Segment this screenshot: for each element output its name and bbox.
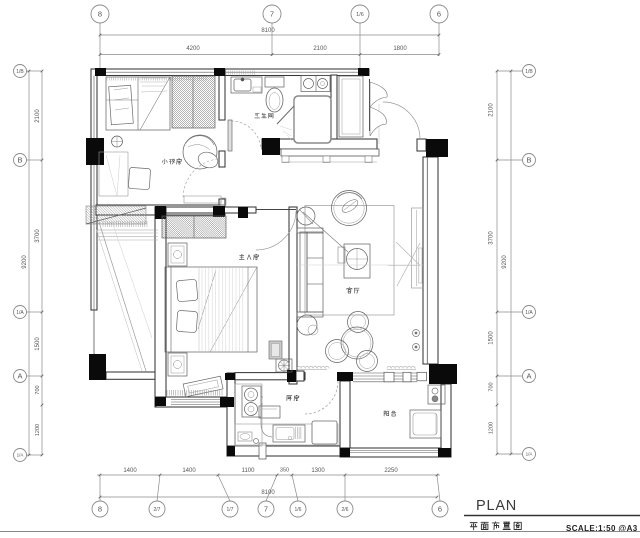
svg-text:8100: 8100 bbox=[261, 490, 275, 496]
svg-text:2100: 2100 bbox=[489, 103, 495, 117]
svg-text:1400: 1400 bbox=[123, 468, 137, 474]
svg-text:7: 7 bbox=[264, 505, 268, 514]
svg-text:1/7: 1/7 bbox=[227, 507, 234, 513]
svg-text:1/A: 1/A bbox=[17, 453, 24, 458]
svg-text:1/A: 1/A bbox=[525, 310, 533, 316]
svg-text:2/6: 2/6 bbox=[342, 507, 349, 513]
svg-text:9200: 9200 bbox=[502, 255, 508, 269]
svg-text:1/6: 1/6 bbox=[356, 12, 364, 18]
svg-text:1/A: 1/A bbox=[526, 452, 533, 457]
svg-text:8: 8 bbox=[98, 10, 102, 19]
svg-text:3700: 3700 bbox=[489, 231, 495, 245]
svg-text:2100: 2100 bbox=[35, 109, 41, 123]
svg-text:8: 8 bbox=[98, 505, 102, 514]
svg-text:A: A bbox=[526, 372, 531, 381]
svg-text:1200: 1200 bbox=[35, 424, 41, 436]
svg-text:700: 700 bbox=[35, 385, 41, 394]
svg-text:1/B: 1/B bbox=[16, 69, 24, 75]
svg-text:B: B bbox=[526, 156, 531, 165]
svg-text:1/6: 1/6 bbox=[295, 507, 302, 513]
svg-text:2100: 2100 bbox=[313, 46, 327, 52]
svg-text:1100: 1100 bbox=[242, 468, 256, 474]
svg-text:6: 6 bbox=[437, 10, 441, 19]
svg-text:6: 6 bbox=[438, 505, 442, 514]
svg-text:1/B: 1/B bbox=[525, 69, 533, 75]
svg-text:8100: 8100 bbox=[261, 28, 275, 34]
svg-text:1300: 1300 bbox=[311, 468, 325, 474]
svg-text:1400: 1400 bbox=[182, 468, 196, 474]
svg-text:1200: 1200 bbox=[489, 422, 495, 434]
svg-text:B: B bbox=[17, 156, 22, 165]
svg-text:7: 7 bbox=[270, 10, 274, 19]
svg-text:700: 700 bbox=[489, 382, 495, 391]
svg-text:3700: 3700 bbox=[35, 229, 41, 243]
svg-text:350: 350 bbox=[280, 468, 289, 474]
svg-text:4200: 4200 bbox=[186, 46, 200, 52]
svg-text:1500: 1500 bbox=[489, 331, 495, 345]
svg-text:1500: 1500 bbox=[35, 337, 41, 351]
svg-text:2/7: 2/7 bbox=[154, 507, 161, 513]
svg-text:A: A bbox=[17, 372, 22, 381]
svg-text:1/A: 1/A bbox=[16, 310, 24, 316]
svg-text:9200: 9200 bbox=[22, 255, 28, 269]
svg-text:1800: 1800 bbox=[393, 46, 407, 52]
svg-text:2250: 2250 bbox=[384, 468, 398, 474]
svg-text:PLAN: PLAN bbox=[476, 498, 517, 514]
